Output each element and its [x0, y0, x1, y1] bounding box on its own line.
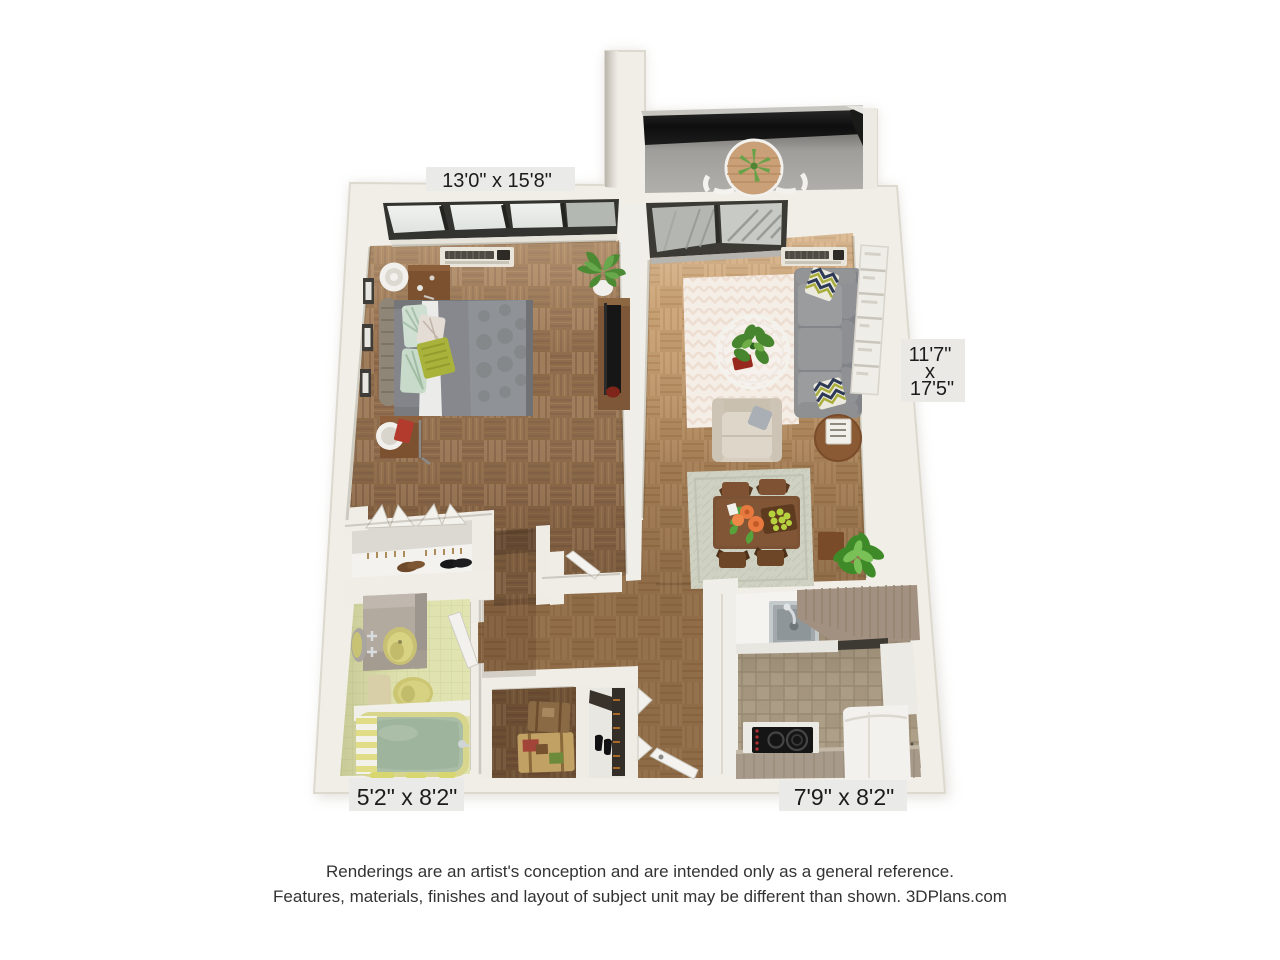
svg-text:17'5": 17'5": [910, 378, 954, 400]
svg-text:7'9" x 8'2": 7'9" x 8'2": [794, 784, 895, 810]
svg-text:13'0" x 15'8": 13'0" x 15'8": [442, 170, 552, 192]
svg-text:Features, materials, finishes: Features, materials, finishes and layout…: [273, 887, 1007, 906]
svg-text:Renderings are an artist's con: Renderings are an artist's conception an…: [326, 862, 954, 881]
svg-text:5'2" x 8'2": 5'2" x 8'2": [357, 784, 458, 810]
